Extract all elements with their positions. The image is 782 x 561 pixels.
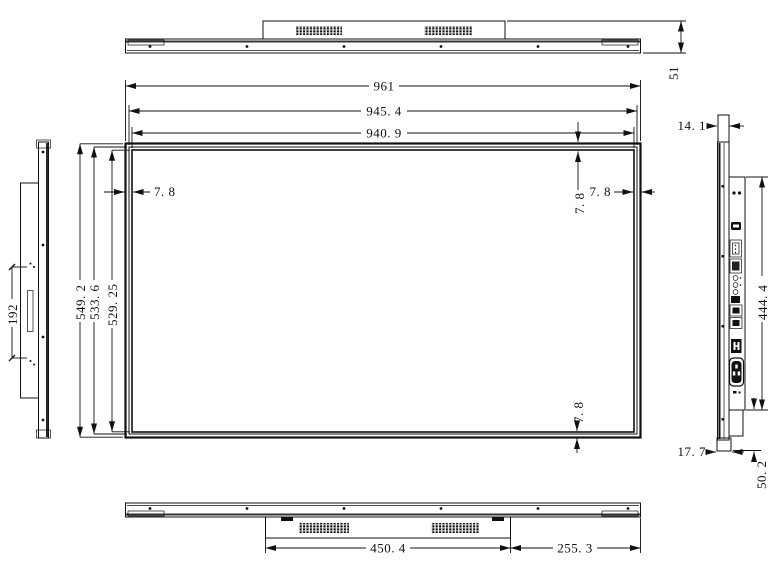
dim-back-panel-height-label: 444. 4 <box>755 285 770 321</box>
usb-a-tongue <box>733 308 740 314</box>
right-side-view <box>717 115 745 451</box>
front-view <box>126 144 641 438</box>
switch-mark <box>733 391 737 394</box>
screw-dot <box>440 507 443 510</box>
usb-a-tongue <box>733 320 740 326</box>
screw-dot <box>627 45 630 48</box>
left-side-view <box>21 140 51 438</box>
vent-grille <box>299 523 349 533</box>
dim-width-display: 940. 9 <box>132 126 634 149</box>
screw-dot <box>33 266 35 268</box>
jack-dot <box>740 284 742 286</box>
screw-dot <box>537 45 540 48</box>
screw-dot <box>42 419 45 422</box>
screw-dot <box>246 507 249 510</box>
technical-drawing-canvas: 51 961 945. 4 940. 9 549. 2 <box>0 0 782 561</box>
vga-pin <box>735 245 736 246</box>
vga-pin <box>735 252 736 253</box>
dim-bottom-section: 50. 2 <box>733 398 769 489</box>
right-view-top-cap <box>718 115 729 142</box>
dim-bezel-bottom: 7. 8 <box>571 402 586 454</box>
audio-jack <box>733 290 738 295</box>
dim-bezel-right-label: 7. 8 <box>590 184 612 199</box>
dim-height-frame-label: 533. 6 <box>87 285 102 321</box>
dim-vent-box-offset-label: 255. 3 <box>557 541 593 556</box>
screw-dot <box>722 255 725 258</box>
dim-bezel-top-label: 7. 8 <box>572 193 587 215</box>
dim-bottom-section-label: 50. 2 <box>754 461 769 490</box>
screw-dot <box>30 263 32 265</box>
power-pin <box>738 372 740 376</box>
dim-top-height-label: 51 <box>666 66 681 80</box>
screw-dot <box>42 244 45 247</box>
bottom-view-screws <box>149 507 630 510</box>
dim-bottom-edge-label: 17. 7 <box>678 444 707 459</box>
dim-vent-box-width: 450. 4 <box>266 538 511 556</box>
mount-tab <box>281 517 293 521</box>
dim-bottom-edge: 17. 7 <box>678 444 745 459</box>
dim-bezel-top: 7. 8 <box>572 122 587 214</box>
screw-dot <box>42 151 45 154</box>
dim-width-outer-label: 961 <box>374 79 395 94</box>
dim-vent-box-width-label: 450. 4 <box>370 541 406 556</box>
power-pin <box>733 372 735 376</box>
screw-dot <box>246 45 249 48</box>
dim-height-display-label: 529. 25 <box>105 284 120 327</box>
indicator-dot <box>738 191 741 194</box>
switch-mark <box>739 392 741 394</box>
vent-grille <box>296 26 342 35</box>
audio-jack <box>733 283 738 288</box>
screw-dot <box>42 336 45 339</box>
vga-pin <box>735 248 736 249</box>
mount-tab <box>492 517 504 521</box>
io-ports <box>730 191 744 393</box>
dim-bezel-right: 7. 8 <box>590 184 656 199</box>
dim-width-display-label: 940. 9 <box>366 126 402 141</box>
screw-dot <box>30 360 32 362</box>
dim-handle-slot-label: 192 <box>5 304 20 325</box>
dim-back-panel-height: 444. 4 <box>746 177 770 410</box>
dim-bezel-left: 7. 8 <box>104 184 176 199</box>
screw-dot <box>343 507 346 510</box>
hdmi-port-slot <box>733 225 739 228</box>
vent-grille <box>431 523 479 533</box>
dim-height-outer-label: 549. 2 <box>73 285 88 321</box>
front-outer-frame <box>126 144 641 438</box>
top-view <box>126 21 641 53</box>
screw-dot <box>149 45 152 48</box>
front-mid-frame <box>129 147 637 434</box>
indicator-dot <box>732 191 735 194</box>
audio-jack <box>733 276 738 281</box>
screw-dot <box>722 418 725 421</box>
dim-vent-box-offset: 255. 3 <box>511 518 641 556</box>
dim-width-frame-label: 945. 4 <box>366 104 402 119</box>
usb-b-port <box>731 296 740 303</box>
screw-dot <box>440 45 443 48</box>
dim-side-thickness: 14. 1 <box>678 118 745 133</box>
dim-bezel-bottom-label: 7. 8 <box>571 402 586 424</box>
screw-dot <box>33 364 35 366</box>
dimension-drawing: 51 961 945. 4 940. 9 549. 2 <box>0 0 782 561</box>
top-view-screws <box>149 45 630 48</box>
jack-dot <box>740 277 742 279</box>
dim-side-thickness-label: 14. 1 <box>678 118 707 133</box>
screw-dot <box>343 45 346 48</box>
handle-slot <box>28 291 34 332</box>
screw-dot <box>722 185 725 188</box>
dim-bezel-left-label: 7. 8 <box>154 184 176 199</box>
screw-dot <box>627 507 630 510</box>
power-pin <box>735 365 737 369</box>
terminal-slot <box>734 345 740 347</box>
right-view-bottom-step <box>729 410 743 436</box>
screw-dot <box>149 507 152 510</box>
dim-handle-slot: 192 <box>5 264 27 361</box>
vent-grille <box>424 26 472 35</box>
serial-port-inner <box>732 262 740 271</box>
front-display-area <box>132 150 634 432</box>
screw-dot <box>537 507 540 510</box>
screw-dot <box>722 325 725 328</box>
bottom-view <box>126 503 641 538</box>
